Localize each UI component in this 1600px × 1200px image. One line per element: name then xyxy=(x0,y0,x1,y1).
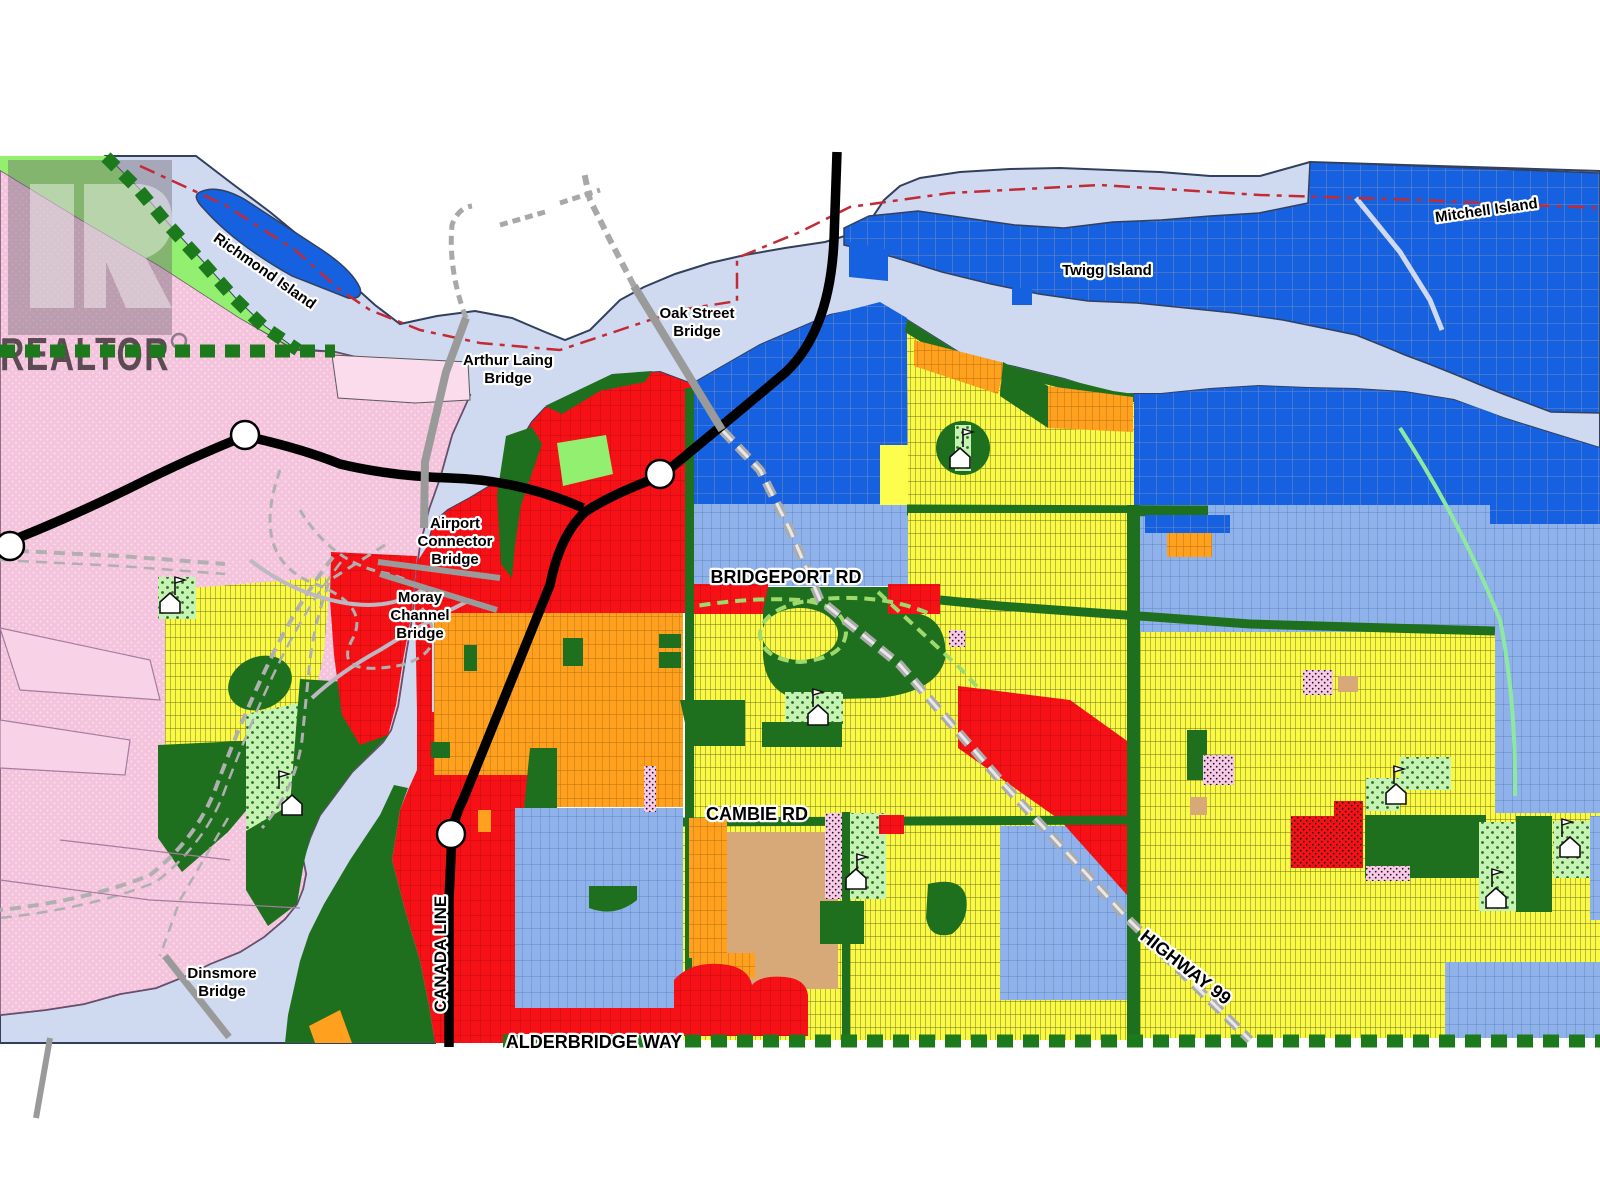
svg-text:Moray: Moray xyxy=(398,589,443,606)
svg-text:Bridge: Bridge xyxy=(396,625,444,642)
svg-text:CAMBIE RD: CAMBIE RD xyxy=(706,804,808,824)
svg-text:Dinsmore: Dinsmore xyxy=(187,965,256,982)
svg-text:Bridge: Bridge xyxy=(431,551,479,568)
svg-text:Bridge: Bridge xyxy=(484,370,532,387)
svg-text:Connector: Connector xyxy=(418,533,493,550)
svg-text:BRIDGEPORT RD: BRIDGEPORT RD xyxy=(710,567,861,587)
svg-text:ALDERBRIDGE WAY: ALDERBRIDGE WAY xyxy=(506,1032,682,1052)
svg-text:Channel: Channel xyxy=(390,607,449,624)
svg-text:Twigg Island: Twigg Island xyxy=(1062,262,1152,279)
svg-text:Bridge: Bridge xyxy=(198,983,246,1000)
svg-text:Arthur Laing: Arthur Laing xyxy=(463,352,553,369)
svg-text:Bridge: Bridge xyxy=(673,323,721,340)
svg-text:Oak Street: Oak Street xyxy=(659,305,734,322)
svg-text:Airport: Airport xyxy=(430,515,480,532)
svg-text:CANADA LINE: CANADA LINE xyxy=(431,896,450,1012)
